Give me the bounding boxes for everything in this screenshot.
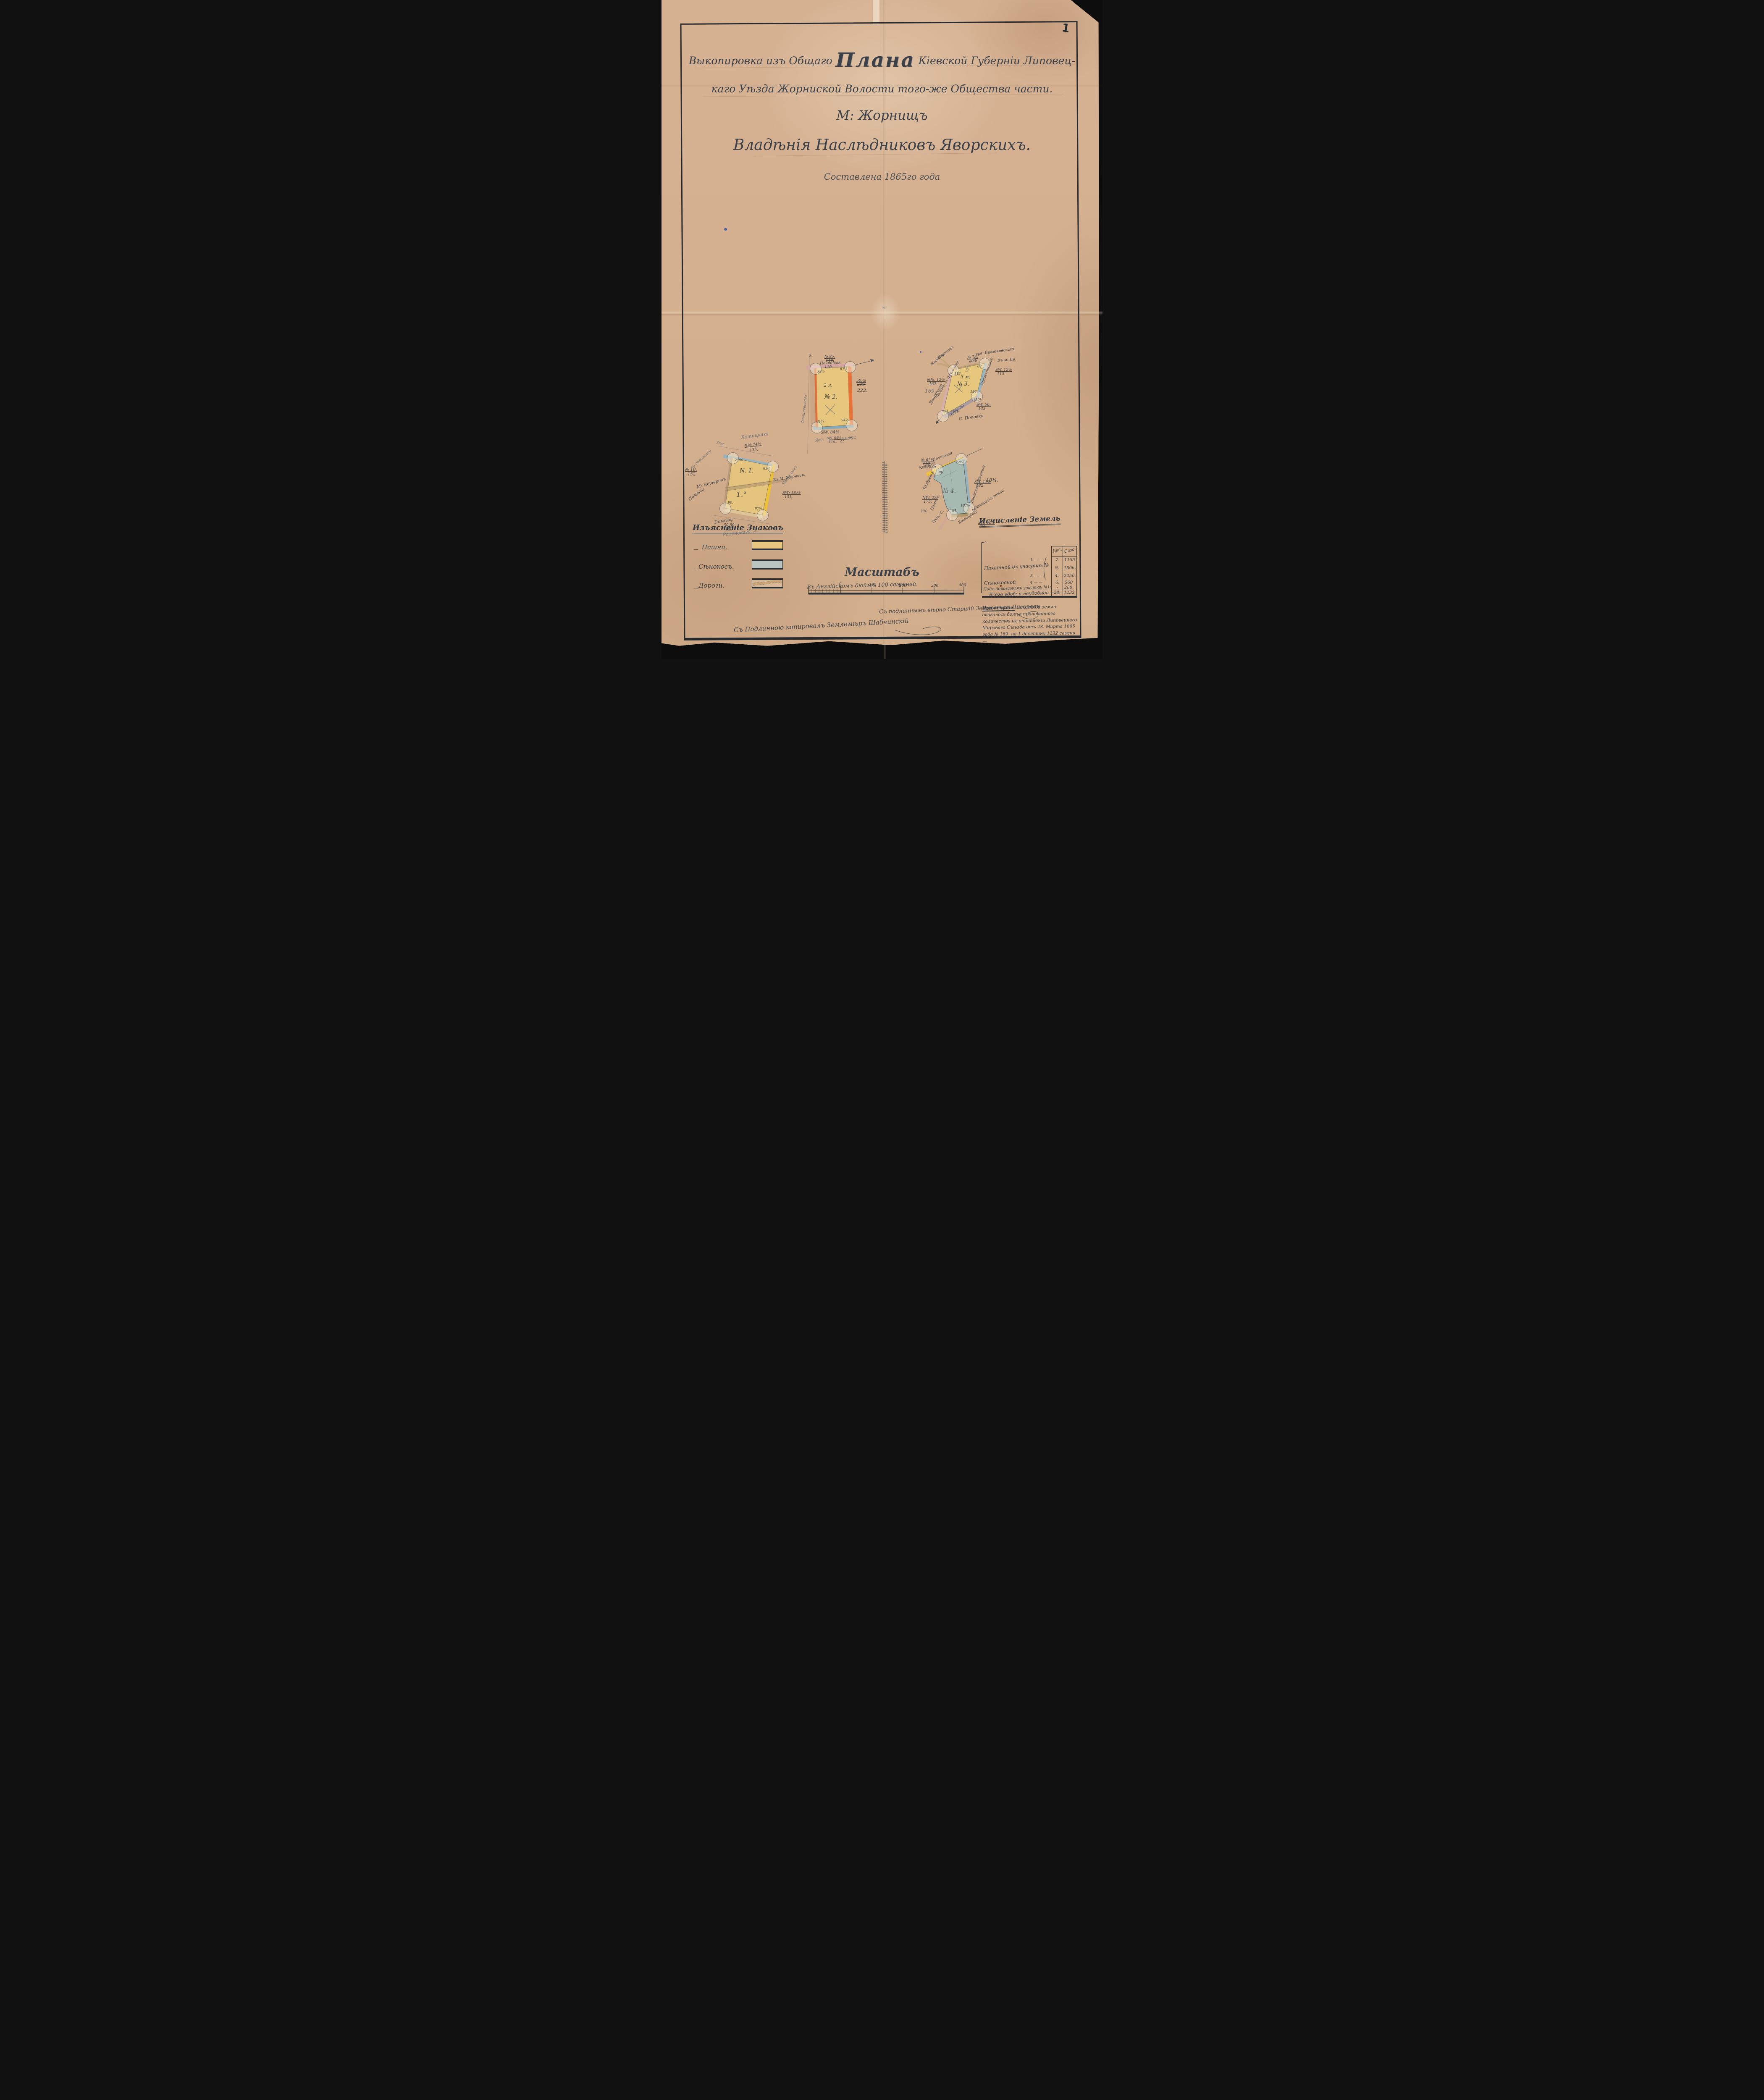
map-annotation: 100. [920,510,929,514]
legend-dash: — [693,547,698,552]
table-cell: 260. [1064,586,1074,590]
map-annotation: SW. 56. [976,403,991,407]
angle-label: 96. [939,471,944,474]
angle-label: 90. [728,501,733,504]
title-word-plana: Плана [836,49,915,72]
title-line-5: Составлена 1865го года [661,172,1102,182]
table-line [1051,546,1077,546]
legend-swatch-arable [752,540,783,550]
parcel-label: № 4. [943,488,956,494]
angle-label: 72½ [955,461,963,464]
angle-label: 89¼ [735,459,743,462]
map-annotation: 18¾. [986,478,998,483]
map-annotation: жс [849,436,856,440]
map-annotation: 103. [969,359,978,364]
road-symbol [752,580,782,587]
table-cell: 6. [1055,581,1060,585]
corner-angle-arc [719,503,731,514]
title-line-1-pre: Выкопировка изъ Общаго [689,55,832,67]
table-cell: 28. [1054,591,1060,595]
angle-label: 83¼ [763,467,771,470]
title-line-2: каго Уѣзда Жорниской Волости того-же Общ… [661,83,1102,95]
title-line-1: Выкопировка изъ Общаго Плана Кіевской Гу… [661,50,1102,71]
legend-dash: — [693,585,698,591]
map-annotation: 222. [857,388,868,393]
map-annotation: SW: 18.½ [782,491,801,495]
legend-item-roads: Дороги. [698,583,724,589]
table-row-label: Сѣнокосной [984,580,1016,586]
angle-label: 84¾ [816,420,824,423]
scale-tick-label: 100 [869,583,876,587]
angle-label: 87½ [840,367,848,371]
table-cell: 1 — — [1030,559,1042,562]
legend-title: Изъясненіе Знаковъ [693,523,783,534]
scale-tick-label: 300 [931,584,938,588]
angle-label: 44. [944,410,949,413]
map-annotation: 133. [978,407,987,411]
map-annotation: 110. [829,441,836,444]
parcel-label: № 3. [957,381,969,387]
map-annotation: 175. [924,500,932,504]
angle-label: 93½ [817,370,825,373]
corner-angle-arc [757,509,769,521]
parcel-pencil-label: 1.° [736,491,747,499]
angle-label: 107½ [961,504,970,507]
legend-swatch-road [752,578,783,588]
ink-stain [724,228,727,231]
table-cell: 7. [1055,558,1060,562]
table-cell: 560 [1065,581,1073,585]
parcel-label: N. 1. [740,468,754,474]
title-line-3: М: Жорнищъ [661,108,1102,123]
angle-label: 67. [977,365,983,368]
scale-tick-label: 200 [899,584,906,588]
scale-title: Масштабъ [661,566,1102,579]
angle-label: 186 [970,390,976,394]
angle-label: 84. [952,509,958,512]
map-annotation: С [840,439,844,444]
table-cell: 1232 [1064,591,1074,595]
scale-tick-label: 400. [959,584,967,588]
map-annotation: 167. [929,383,937,386]
map-annotation: 151. [785,496,793,499]
map-annotation: 230. [857,383,866,387]
map-annotation: SW. 12½ [995,368,1012,372]
parcel-pencil-label: 2 л. [824,383,832,388]
scanned-map-page: 1 Выкопировка изъ Общаго Плана Кіевской … [661,0,1102,659]
scale-tick-label: 0 [839,583,842,586]
map-annotation: 152 [688,472,696,477]
parcel-label: № 2. [824,394,837,400]
fold-center-mark: № [882,306,886,310]
table-line [1051,556,1077,556]
table-cell: · [1057,586,1058,590]
paper-tear [873,0,879,24]
map-annotation: №№. 12½ [927,378,945,382]
title-line-1-post: Кіевской Губерніи Липовец- [919,55,1076,67]
map-annotation: з [809,354,811,358]
map-annotation: SW. 84½. [821,430,841,435]
angle-label: 97½ [755,507,762,510]
table-cell: 1156. [1064,558,1076,562]
ink-stain [920,351,921,353]
title-line-4: Владѣнія Наслѣдниковъ Яворскихъ. [661,137,1102,154]
legend-item-arable: Пашни. [702,544,727,551]
table-cell: 4 — — [1030,581,1042,585]
angle-label: 94½ [841,419,849,422]
parcel-pencil-label: 3 м. [961,375,970,379]
map-annotation: 110. [824,366,833,370]
map-annotation: 115. [997,373,1005,376]
